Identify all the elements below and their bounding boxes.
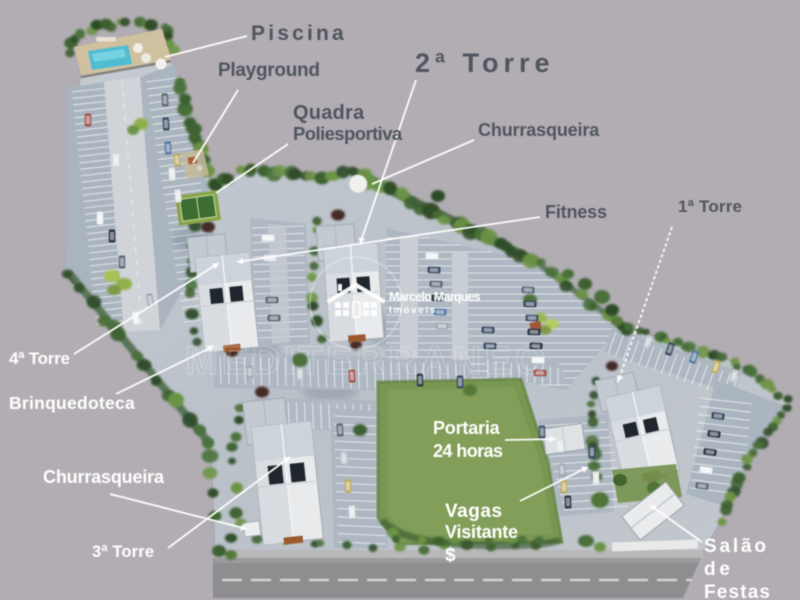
svg-text:3ª Torre: 3ª Torre	[92, 543, 154, 561]
svg-text:Poliesportiva: Poliesportiva	[293, 123, 403, 144]
svg-text:24 horas: 24 horas	[433, 441, 503, 461]
svg-text:Churrasqueira: Churrasqueira	[478, 120, 600, 140]
svg-text:Marcelo Marques: Marcelo Marques	[389, 290, 481, 304]
svg-text:Salão: Salão	[704, 536, 769, 557]
svg-text:2ª Torre: 2ª Torre	[415, 48, 555, 78]
svg-text:de: de	[704, 559, 734, 580]
svg-text:Playground: Playground	[218, 60, 320, 81]
svg-text:Visitante: Visitante	[445, 522, 518, 542]
svg-text:Fitness: Fitness	[545, 202, 607, 222]
svg-text:Portaria: Portaria	[433, 418, 501, 438]
svg-text:$: $	[445, 545, 456, 566]
svg-text:MEDITERRANEO: MEDITERRANEO	[185, 339, 549, 383]
svg-text:4ª Torre: 4ª Torre	[9, 349, 70, 368]
svg-text:Festas: Festas	[704, 582, 771, 600]
svg-text:Brinquedoteca: Brinquedoteca	[9, 393, 135, 413]
svg-text:Vagas: Vagas	[445, 501, 503, 522]
svg-text:1ª Torre: 1ª Torre	[678, 197, 742, 216]
svg-text:Piscina: Piscina	[251, 22, 347, 45]
svg-text:Quadra: Quadra	[293, 102, 365, 124]
svg-text:Imóveis: Imóveis	[389, 305, 437, 316]
svg-text:Churrasqueira: Churrasqueira	[43, 467, 165, 487]
